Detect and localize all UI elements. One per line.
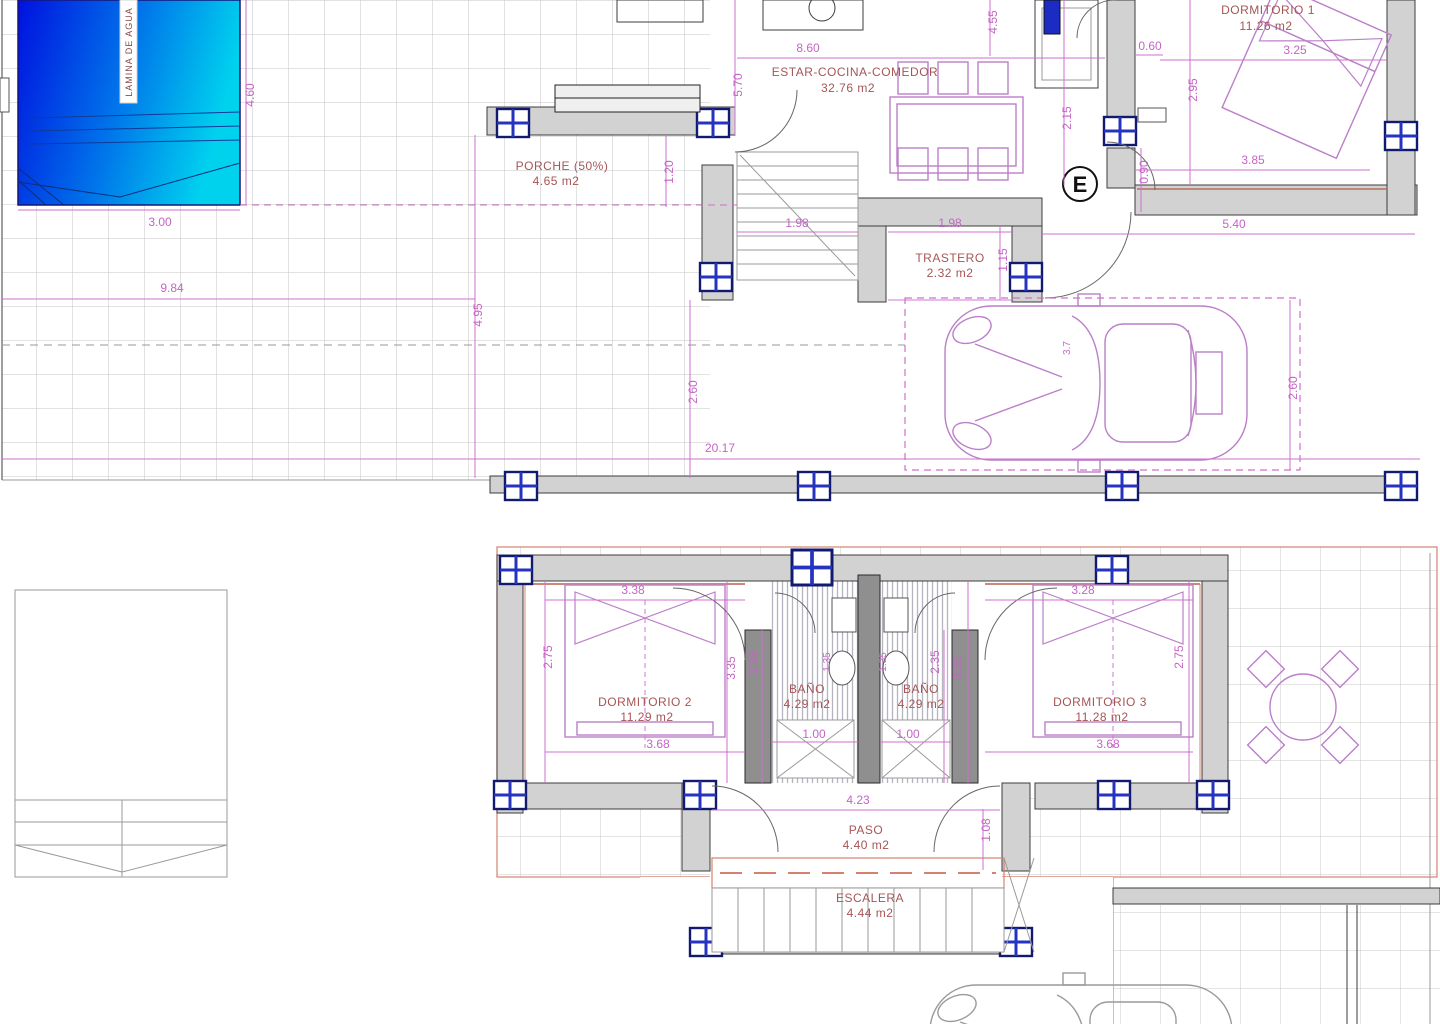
room-bano1-area: 4.29 m2 bbox=[784, 697, 831, 711]
dim-dorm3-width-top: 3.28 bbox=[1071, 583, 1095, 597]
room-bano2-area: 4.29 m2 bbox=[898, 697, 945, 711]
room-trastero-area: 2.32 m2 bbox=[927, 266, 974, 280]
dim-paso-width: 4.23 bbox=[846, 793, 870, 807]
dim-stair-width: 1.98 bbox=[785, 216, 809, 230]
floor-plan-drawing: LAMINA DE AGUA bbox=[0, 0, 1440, 1024]
pool-label: LAMINA DE AGUA bbox=[124, 7, 134, 97]
dim-trastero-width: 1.98 bbox=[938, 216, 962, 230]
dim-estar-width: 8.60 bbox=[796, 41, 820, 55]
dim-dorm1-width2: 3.85 bbox=[1241, 153, 1265, 167]
dim-dorm3-height-right: 2.75 bbox=[1172, 645, 1186, 669]
room-paso-area: 4.40 m2 bbox=[843, 838, 890, 852]
room-paso-name: PASO bbox=[849, 823, 883, 837]
room-trastero-name: TRASTERO bbox=[915, 251, 984, 265]
dim-car-width: 3.7 bbox=[1062, 341, 1073, 355]
swimming-pool: LAMINA DE AGUA bbox=[0, 0, 240, 205]
room-escalera-area: 4.44 m2 bbox=[847, 906, 894, 920]
dining-set bbox=[890, 62, 1023, 180]
room-porche-area: 4.65 m2 bbox=[533, 174, 580, 188]
room-dormitorio2-name: DORMITORIO 2 bbox=[598, 695, 692, 709]
dim-terrace-height: 4.95 bbox=[471, 303, 485, 327]
dim-bath1-depth: 2.35 bbox=[746, 650, 760, 674]
dim-bath1-width: 1.35 bbox=[822, 652, 833, 672]
dim-dorm3-width-bottom: 3.68 bbox=[1096, 737, 1120, 751]
room-estar-area: 32.76 m2 bbox=[821, 81, 875, 95]
dim-bath2-door: 1.00 bbox=[896, 727, 920, 741]
dim-dorm2-height-left: 2.75 bbox=[541, 645, 555, 669]
ground-floor-plan: LAMINA DE AGUA bbox=[0, 0, 1420, 500]
floor-plan-canvas: LAMINA DE AGUA bbox=[0, 0, 1440, 1024]
room-dormitorio2-area: 11.29 m2 bbox=[620, 710, 673, 724]
dim-bath2-width: 1.35 bbox=[878, 652, 889, 672]
dim-porch-depth: 1.20 bbox=[662, 160, 676, 184]
room-dormitorio1-area: 11.26 m2 bbox=[1239, 19, 1292, 33]
room-dormitorio3-area: 11.28 m2 bbox=[1075, 710, 1128, 724]
dim-pool-height: 4.60 bbox=[243, 83, 257, 107]
room-escalera-name: ESCALERA bbox=[836, 891, 904, 905]
dim-entry-depth: 0.90 bbox=[1137, 160, 1151, 184]
dim-dorm2-width-bottom: 3.68 bbox=[646, 737, 670, 751]
pool-outline-below bbox=[15, 590, 227, 877]
dim-dorm2-height-inner: 3.35 bbox=[724, 656, 738, 680]
parking-area bbox=[905, 294, 1300, 472]
dim-bath1-door: 1.00 bbox=[802, 727, 826, 741]
dim-walk-height: 2.60 bbox=[686, 380, 700, 404]
lower-terrace-paving bbox=[1113, 905, 1440, 1024]
room-porche-name: PORCHE (50%) bbox=[516, 159, 609, 173]
dim-trastero-height: 1.15 bbox=[996, 248, 1010, 272]
dim-dorm1-height: 2.95 bbox=[1186, 78, 1200, 102]
dim-dorm2-width-top: 3.38 bbox=[621, 583, 645, 597]
dim-pool-width: 3.00 bbox=[148, 215, 172, 229]
dim-right-width: 5.40 bbox=[1222, 217, 1246, 231]
car-top-view bbox=[945, 294, 1247, 472]
dim-bath2-depth: 2.35 bbox=[928, 650, 942, 674]
dim-terrace-width: 9.84 bbox=[160, 281, 184, 295]
electrical-symbol: E bbox=[1063, 167, 1097, 201]
dim-estar-height: 5.70 bbox=[731, 73, 745, 97]
dim-parking-height: 2.60 bbox=[1286, 376, 1300, 400]
dim-dorm1-width: 3.25 bbox=[1283, 43, 1307, 57]
room-dormitorio3-name: DORMITORIO 3 bbox=[1053, 695, 1147, 709]
room-estar-name: ESTAR-COCINA-COMEDOR bbox=[772, 65, 938, 79]
dim-dorm3-height-inner: 3.35 bbox=[950, 656, 964, 680]
dim-kitchen-height: 4.55 bbox=[986, 10, 1000, 34]
room-dormitorio1-name: DORMITORIO 1 bbox=[1221, 3, 1315, 17]
dim-entry-width: 0.60 bbox=[1138, 39, 1162, 53]
dim-hall-height: 2.15 bbox=[1060, 106, 1074, 130]
first-floor-plan: 3.38 3.28 2.75 2.75 3.35 3.35 2.35 2.35 … bbox=[15, 547, 1440, 1024]
room-bano1-name: BAÑO bbox=[789, 682, 825, 696]
electrical-symbol-letter: E bbox=[1073, 172, 1088, 197]
dim-plot-width: 20.17 bbox=[705, 441, 735, 455]
room-bano2-name: BAÑO bbox=[903, 682, 939, 696]
dim-paso-height: 1.08 bbox=[979, 818, 993, 842]
